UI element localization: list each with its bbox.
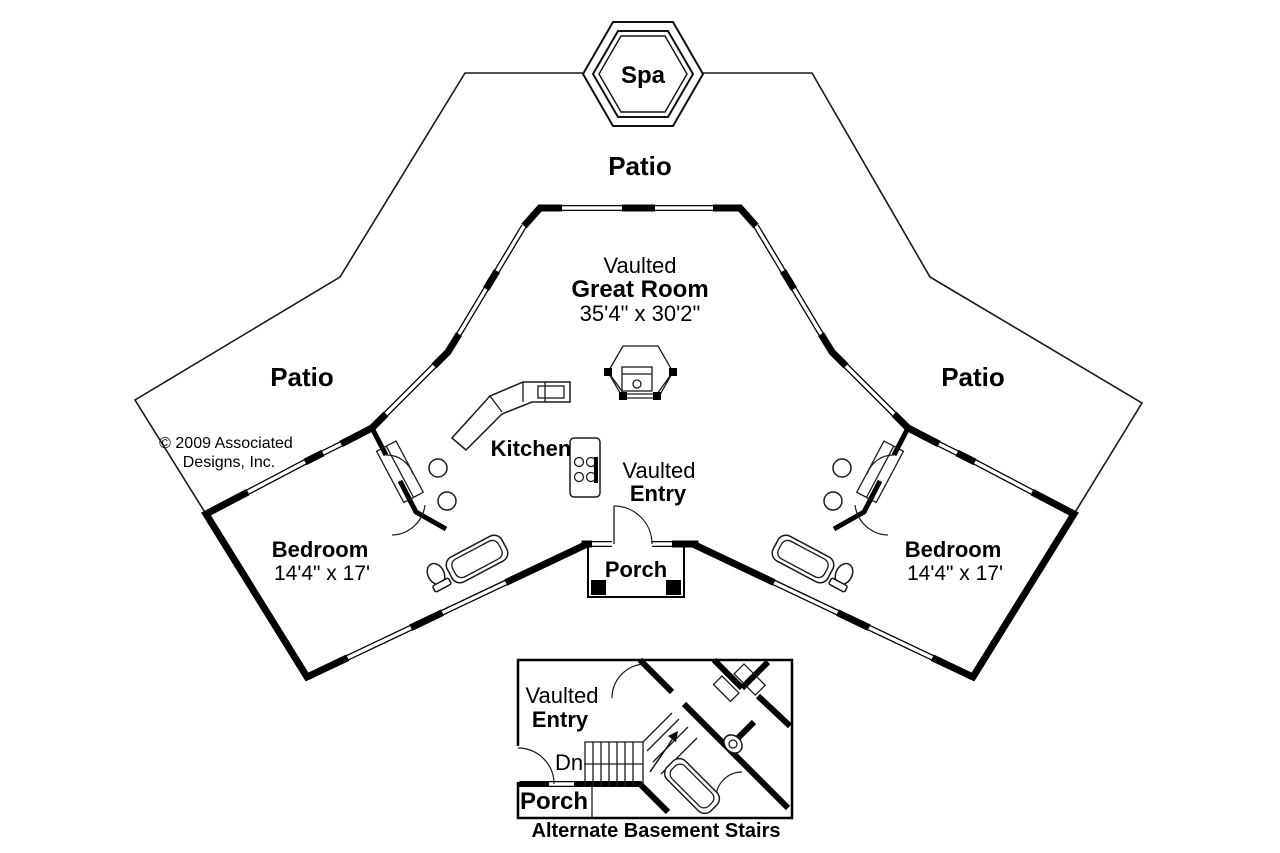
porch-post xyxy=(666,580,681,595)
porch-label: Porch xyxy=(605,557,667,582)
copyright-line1: © 2009 Associated xyxy=(159,435,293,452)
patio-label-right: Patio xyxy=(941,362,1005,392)
great-room-dims: 35'4" x 30'2" xyxy=(580,301,701,326)
stove-island xyxy=(570,438,600,497)
bathtub xyxy=(443,532,511,586)
floor-plan-page: Spa Patio Patio Patio Vaulted Great Room… xyxy=(0,0,1280,853)
patio-label-left: Patio xyxy=(270,362,334,392)
bedroom-left-label: Bedroom xyxy=(272,537,369,562)
inset-entry-label: Entry xyxy=(532,707,589,732)
entry-vaulted-label: Vaulted xyxy=(623,458,696,483)
porch-post xyxy=(591,580,606,595)
sink xyxy=(438,492,456,510)
bath-cluster-right xyxy=(769,428,908,592)
copyright-line2: Designs, Inc. xyxy=(183,454,275,471)
inset-porch-label: Porch xyxy=(520,788,588,815)
bedroom-right-label: Bedroom xyxy=(905,537,1002,562)
inset-dn-label: Dn xyxy=(555,750,583,775)
spa-label: Spa xyxy=(621,62,666,89)
sink xyxy=(429,459,447,477)
kitchen-label: Kitchen xyxy=(491,436,572,461)
entry-label: Entry xyxy=(630,481,687,506)
entry-door xyxy=(614,506,652,544)
bedroom-left-dims: 14'4" x 17' xyxy=(274,562,370,585)
floor-plan-drawing: Spa Patio Patio Patio Vaulted Great Room… xyxy=(0,0,1280,853)
patio-label-top: Patio xyxy=(608,151,672,181)
great-room-vaulted-label: Vaulted xyxy=(604,253,677,278)
bedroom-right-dims: 14'4" x 17' xyxy=(907,562,1003,585)
inset-caption: Alternate Basement Stairs xyxy=(532,820,781,842)
fireplace xyxy=(604,346,677,400)
inset-vaulted-label: Vaulted xyxy=(526,683,599,708)
great-room-label: Great Room xyxy=(571,276,708,303)
